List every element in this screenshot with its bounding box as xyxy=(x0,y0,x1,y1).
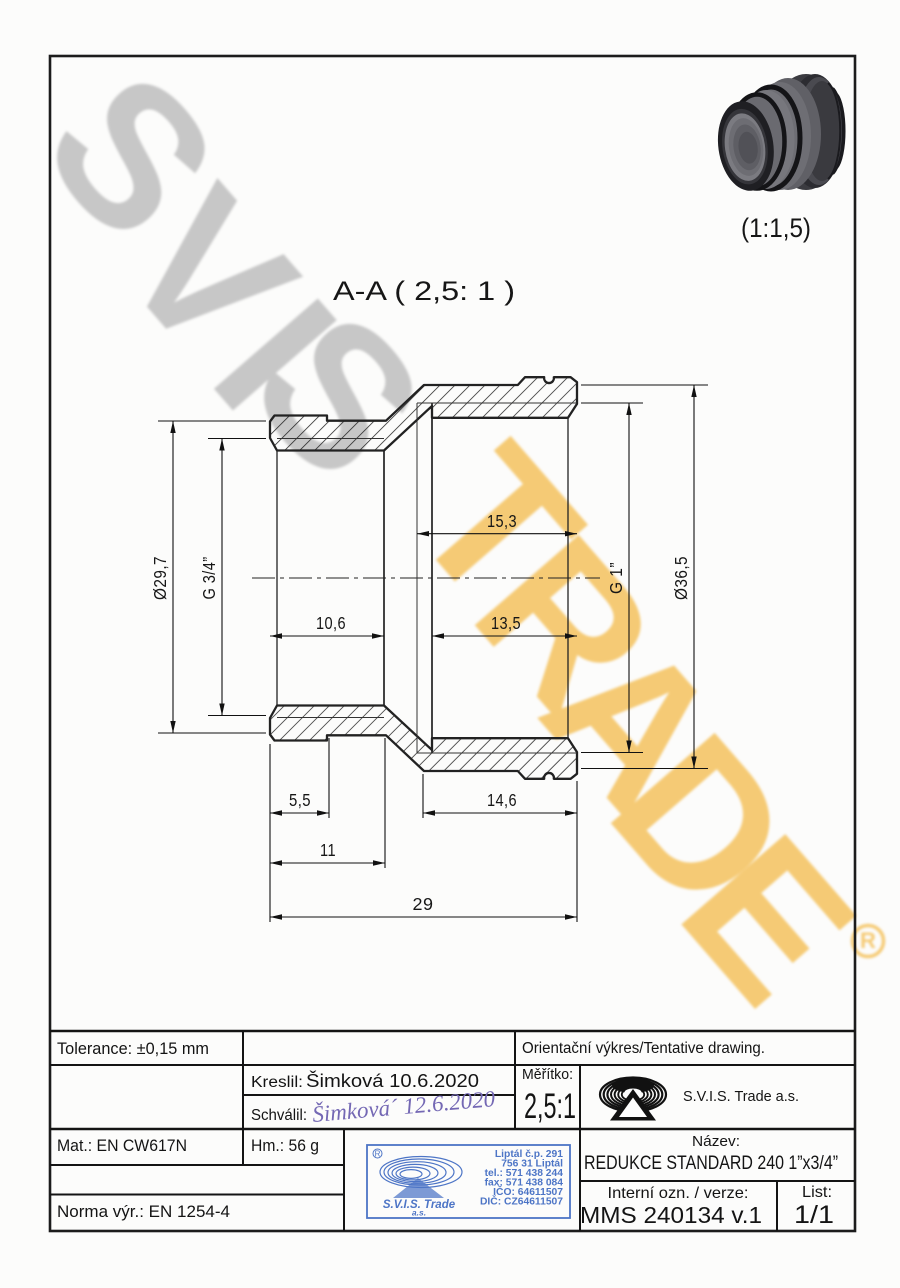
svg-text:Měřítko:: Měřítko: xyxy=(522,1067,573,1083)
svg-text:Ø36,5: Ø36,5 xyxy=(671,556,691,600)
svg-text:Mat.: EN CW617N: Mat.: EN CW617N xyxy=(57,1136,187,1155)
svg-text:Ø29,7: Ø29,7 xyxy=(150,556,170,600)
svg-text:15,3: 15,3 xyxy=(487,511,517,531)
svg-text:Kreslil:: Kreslil: xyxy=(251,1074,303,1091)
svg-text:A-A ( 2,5: 1 ): A-A ( 2,5: 1 ) xyxy=(333,276,515,306)
svg-text:14,6: 14,6 xyxy=(487,790,517,810)
svg-text:Interní ozn. / verze:: Interní ozn. / verze: xyxy=(608,1185,749,1202)
svg-text:G 1”: G 1” xyxy=(606,562,626,594)
svg-text:DIČ: CZ64611507: DIČ: CZ64611507 xyxy=(480,1195,563,1208)
svg-text:5,5: 5,5 xyxy=(289,790,311,810)
svg-text:10,6: 10,6 xyxy=(316,613,346,633)
svg-text:R: R xyxy=(860,928,876,953)
svg-text:a.s.: a.s. xyxy=(412,1208,426,1218)
svg-text:11: 11 xyxy=(320,840,336,860)
svg-text:G 3/4”: G 3/4” xyxy=(199,557,219,600)
svg-text:1/1: 1/1 xyxy=(794,1201,834,1229)
svg-text:Šimková 10.6.2020: Šimková 10.6.2020 xyxy=(306,1070,479,1091)
svg-text:List:: List: xyxy=(802,1184,832,1201)
svg-text:Orientační výkres/Tentative dr: Orientační výkres/Tentative drawing. xyxy=(522,1040,765,1057)
svg-text:Hm.: 56 g: Hm.: 56 g xyxy=(251,1136,319,1155)
svg-text:R: R xyxy=(375,1150,381,1159)
svg-text:13,5: 13,5 xyxy=(491,613,521,633)
svg-text:Tolerance: ±0,15 mm: Tolerance: ±0,15 mm xyxy=(57,1039,209,1058)
svg-text:S.V.I.S. Trade a.s.: S.V.I.S. Trade a.s. xyxy=(683,1088,799,1105)
svg-text:Šimková´ 12.6.2020: Šimková´ 12.6.2020 xyxy=(311,1085,496,1127)
svg-text:(1:1,5): (1:1,5) xyxy=(741,213,811,243)
svg-text:REDUKCE STANDARD 240 1”x3/4”: REDUKCE STANDARD 240 1”x3/4” xyxy=(584,1152,838,1174)
svg-text:Schválil:: Schválil: xyxy=(251,1107,307,1124)
svg-text:Název:: Název: xyxy=(692,1133,740,1150)
svg-text:29: 29 xyxy=(413,894,434,914)
svg-text:2,5:1: 2,5:1 xyxy=(524,1087,576,1126)
svg-text:MMS 240134 v.1: MMS 240134 v.1 xyxy=(580,1202,762,1228)
svg-text:Norma výr.: EN 1254-4: Norma výr.: EN 1254-4 xyxy=(57,1202,230,1221)
